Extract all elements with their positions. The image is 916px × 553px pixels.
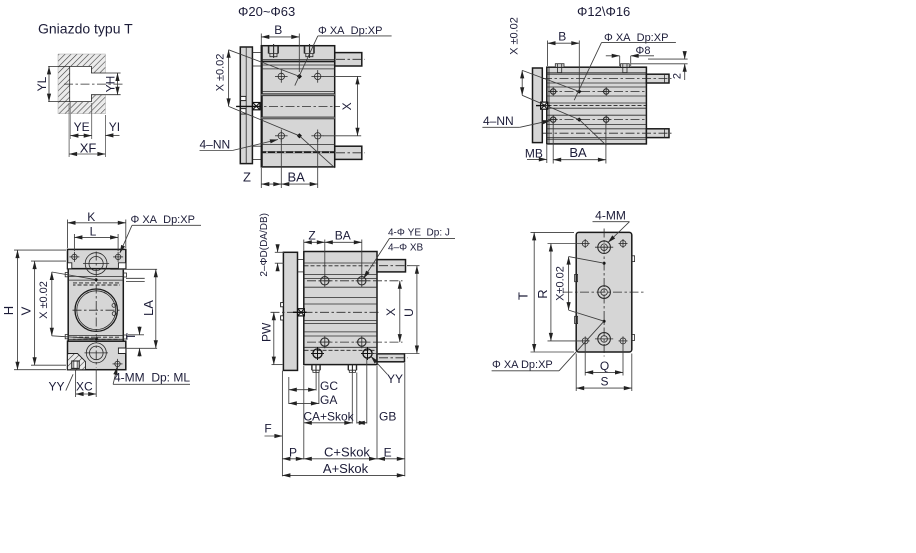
svg-text:X±0.02: X±0.02 (555, 266, 567, 301)
svg-text:A+Skok: A+Skok (323, 461, 369, 476)
svg-text:4-Φ YE Dp: J: 4-Φ YE Dp: J (388, 227, 450, 238)
svg-text:Q: Q (600, 359, 609, 373)
svg-text:X ±0.02: X ±0.02 (215, 54, 227, 92)
svg-text:4-MM Dp: ML: 4-MM Dp: ML (114, 371, 190, 385)
svg-text:Φ XA Dp:XP: Φ XA Dp:XP (318, 25, 382, 37)
svg-text:B: B (558, 30, 566, 44)
svg-text:GC: GC (320, 379, 338, 393)
svg-text:PW: PW (260, 322, 274, 342)
svg-text:X ±0.02: X ±0.02 (508, 17, 520, 55)
svg-text:Z: Z (308, 229, 315, 243)
svg-text:2: 2 (671, 73, 683, 79)
svg-text:Φ8: Φ8 (636, 45, 651, 57)
svg-text:T: T (516, 292, 531, 300)
svg-text:YY: YY (387, 372, 403, 386)
svg-text:YI: YI (109, 120, 120, 134)
svg-text:XC: XC (76, 380, 93, 394)
svg-text:GA: GA (320, 393, 337, 407)
svg-text:L: L (90, 224, 97, 238)
svg-text:X: X (340, 102, 354, 110)
svg-text:T: T (124, 332, 138, 340)
svg-text:4–NN: 4–NN (200, 138, 231, 152)
svg-text:P: P (289, 446, 297, 460)
svg-text:BA: BA (288, 170, 306, 185)
svg-text:BA: BA (569, 145, 587, 160)
svg-text:F: F (264, 422, 271, 436)
svg-text:GB: GB (379, 409, 396, 423)
svg-text:YY: YY (48, 380, 64, 394)
svg-text:CA+Skok: CA+Skok (303, 409, 354, 423)
svg-text:V: V (18, 306, 33, 315)
svg-text:LA: LA (141, 300, 156, 316)
svg-text:H: H (1, 306, 16, 315)
svg-text:C+Skok: C+Skok (324, 445, 370, 460)
svg-text:XF: XF (80, 141, 97, 156)
svg-text:YE: YE (74, 120, 90, 134)
svg-text:Gniazdo typu T: Gniazdo typu T (38, 21, 133, 37)
svg-text:X ±0.02: X ±0.02 (38, 281, 50, 319)
svg-text:E: E (384, 446, 392, 460)
svg-text:2–ΦD(DA/DB): 2–ΦD(DA/DB) (259, 213, 270, 277)
svg-text:X: X (384, 308, 398, 316)
svg-text:U: U (402, 308, 416, 317)
svg-text:Φ20~Φ63: Φ20~Φ63 (238, 4, 295, 19)
svg-text:Φ XA Dp:XP: Φ XA Dp:XP (492, 359, 553, 371)
svg-text:Φ12\Φ16: Φ12\Φ16 (577, 4, 630, 19)
svg-text:4–NN: 4–NN (483, 114, 514, 128)
svg-text:YH: YH (104, 76, 118, 93)
svg-text:MB: MB (525, 146, 543, 160)
svg-text:Z: Z (243, 170, 251, 185)
svg-text:YL: YL (35, 76, 49, 91)
svg-text:BA: BA (335, 229, 351, 243)
svg-text:B: B (274, 23, 282, 37)
svg-text:4-MM: 4-MM (595, 208, 626, 222)
svg-text:R: R (535, 289, 550, 298)
svg-text:4–Φ XB: 4–Φ XB (388, 243, 424, 254)
svg-text:S: S (600, 375, 608, 389)
svg-text:Φ XA Dp:XP: Φ XA Dp:XP (131, 214, 195, 226)
svg-text:K: K (87, 210, 95, 224)
